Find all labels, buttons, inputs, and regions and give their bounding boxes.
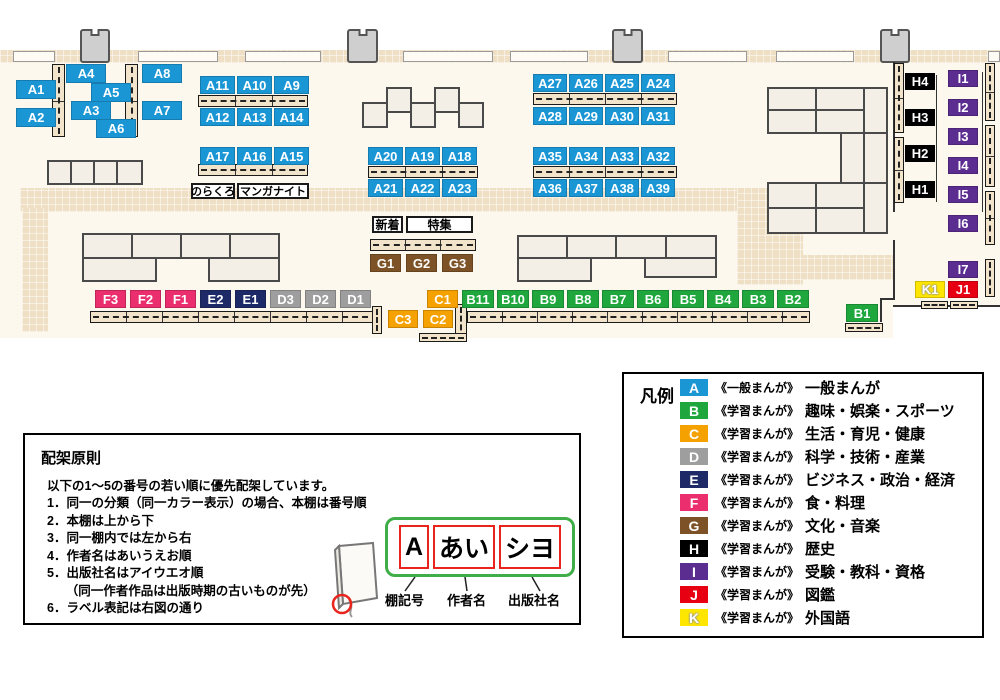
legend-row: H 《学習まんが》 歴史 [680, 540, 955, 557]
window [13, 51, 55, 62]
principles-rule: 2．本棚は上から下 [47, 513, 366, 531]
table-block [815, 207, 865, 234]
table-block [863, 87, 888, 134]
shelf-tag: A28 [533, 107, 567, 125]
category-label: 科学・技術・産業 [805, 446, 925, 467]
table-block [767, 182, 817, 209]
spine-label-diagram: Aあいシヨ [385, 517, 575, 577]
shelf-tag-row-a12-a14: A12A13A14 [200, 108, 309, 126]
legend-row: E 《学習まんが》 ビジネス・政治・経済 [680, 471, 955, 488]
legend-row: D 《学習まんが》 科学・技術・産業 [680, 448, 955, 465]
shelf-tag: B3 [742, 290, 774, 308]
shelf-tag-i7: I7 [948, 261, 978, 278]
shelf-tag: C2 [423, 310, 453, 328]
shelf-tag: A26 [569, 74, 603, 92]
wall-step [880, 298, 895, 300]
table-block [93, 160, 118, 185]
legend-row: K 《学習まんが》 外国語 [680, 609, 955, 626]
shelf-tag: A23 [442, 179, 477, 197]
shelf-tag: B10 [497, 290, 529, 308]
table-block [82, 257, 157, 282]
window [668, 51, 747, 62]
shelf-tag: F1 [165, 290, 196, 308]
table-block [517, 235, 568, 259]
bookshelf-b1 [845, 323, 883, 332]
window [138, 51, 218, 62]
shelf-tag-row-a20-a18: A20A19A18 [368, 147, 477, 165]
series-label: 《学習まんが》 [715, 402, 799, 419]
shelf-tag: A36 [533, 179, 567, 197]
shelf-tag-row-a35-a32: A35A34A33A32 [533, 147, 675, 165]
shelf-tag-row-fed: F3F2F1E2E1D3D2D1 [95, 290, 371, 308]
category-color-chip: C [680, 425, 708, 442]
table-block [767, 109, 817, 134]
series-label: 《学習まんが》 [715, 448, 799, 465]
shelf-tag: A13 [237, 108, 272, 126]
principles-rule: 1．同一の分類（同一カラー表示）の場合、本棚は番号順 [47, 495, 366, 513]
table-block [644, 257, 717, 278]
bookshelf [533, 166, 677, 178]
shelf-tag: A20 [368, 147, 403, 165]
table-block [863, 182, 888, 234]
shelf-tag: D3 [270, 290, 301, 308]
category-label: 受験・教科・資格 [805, 561, 925, 582]
wall-shelf [894, 63, 904, 133]
shelf-tag-j1: J1 [948, 281, 978, 298]
shelf-tag-a3: A3 [71, 101, 111, 120]
shelf-tag: B5 [672, 290, 704, 308]
shelf-tag: E2 [200, 290, 231, 308]
shelf-tag: H2 [905, 145, 935, 162]
shelf-unit-line-h [936, 75, 937, 202]
shelf-tag-row-g: G1G2G3 [370, 254, 473, 272]
caption-author-name: 作者名 [447, 590, 486, 609]
table-block [566, 235, 617, 259]
shelf-unit-line-i [982, 72, 983, 212]
shelf-tag: A10 [237, 76, 272, 94]
category-color-chip: J [680, 586, 708, 603]
shelf-tag: B4 [707, 290, 739, 308]
shelf-tag: A14 [274, 108, 309, 126]
shelf-tag-c1: C1 [427, 290, 458, 308]
shelf-tag: I2 [948, 99, 978, 116]
table-block [362, 102, 388, 128]
wall-shelf [985, 191, 995, 245]
series-label: 《学習まんが》 [715, 425, 799, 442]
bookshelf [372, 306, 382, 334]
table-block [615, 235, 667, 259]
shelf-tag: B2 [777, 290, 809, 308]
shelf-tag-a5: A5 [91, 83, 131, 102]
principles-rule: 4．作者名はあいうえお順 [47, 548, 366, 566]
shelf-tag: I4 [948, 157, 978, 174]
library-floor-map: { "colors": { "a_blue": "#1b96d5", "b_gr… [0, 0, 1000, 700]
shelf-tag-row-b: B11B10B9B8B7B6B5B4B3B2 [462, 290, 809, 308]
window [988, 51, 1000, 62]
shelf-tag: H1 [905, 181, 935, 198]
category-color-chip: A [680, 379, 708, 396]
table-block [815, 87, 865, 111]
window [776, 51, 854, 62]
shelf-tag: F2 [130, 290, 161, 308]
legend-row: A 《一般まんが》 一般まんが [680, 379, 955, 396]
bookshelf-long-left [90, 311, 381, 323]
principles-rule: 3．同一棚内では左から右 [47, 530, 366, 548]
shelf-tag: A17 [200, 147, 235, 165]
category-color-chip: I [680, 563, 708, 580]
shelf-tag-row-a36-a39: A36A37A38A39 [533, 179, 675, 197]
caption-publisher-name: 出版社名 [508, 590, 560, 609]
category-label: 歴史 [805, 538, 835, 559]
category-color-chip: K [680, 609, 708, 626]
wall-shelf [985, 125, 995, 187]
wall-shelf [985, 63, 995, 121]
legend-items: A 《一般まんが》 一般まんが B 《学習まんが》 趣味・娯楽・スポーツ C 《… [680, 379, 955, 626]
shelf-tag: A22 [405, 179, 440, 197]
shelf-tag: A39 [641, 179, 675, 197]
series-label: 《学習まんが》 [715, 517, 799, 534]
shelf-tag: G3 [442, 254, 473, 272]
pillar [347, 29, 378, 63]
category-color-chip: G [680, 517, 708, 534]
shelf-tag-k1: K1 [915, 281, 945, 298]
shelf-tag: A9 [274, 76, 309, 94]
principles-rules: 1．同一の分類（同一カラー表示）の場合、本棚は番号順2．本棚は上から下3．同一棚… [47, 495, 366, 618]
shelf-tag: A19 [405, 147, 440, 165]
table-block [815, 109, 865, 134]
caption-shelf-code: 棚記号 [385, 590, 424, 609]
category-label: 食・料理 [805, 492, 865, 513]
shelf-tag: B8 [567, 290, 599, 308]
new-and-feature-shelf [370, 239, 476, 251]
principles-rule: （同一作者作品は出版時期の古いものが先） [47, 583, 366, 601]
walkway-left [22, 208, 48, 332]
shelf-tag: E1 [235, 290, 266, 308]
table-block [208, 257, 280, 282]
window [245, 51, 321, 62]
shelf-tag: G1 [370, 254, 401, 272]
shelf-tag-row-a11-a9: A11A10A9 [200, 76, 309, 94]
wall-step [880, 298, 882, 322]
shelf-tag: A37 [569, 179, 603, 197]
pillar [880, 29, 910, 63]
shelf-tag: A34 [569, 147, 603, 165]
category-label: 趣味・娯楽・スポーツ [805, 400, 955, 421]
legend-row: F 《学習まんが》 食・料理 [680, 494, 955, 511]
bookshelf [198, 95, 308, 107]
legend-row: I 《学習まんが》 受験・教科・資格 [680, 563, 955, 580]
note-special-feature: 特集 [406, 216, 473, 233]
shelf-tag-a7: A7 [142, 101, 182, 120]
table-block [82, 233, 133, 259]
shelf-tag: I5 [948, 186, 978, 203]
shelf-tag: D1 [340, 290, 371, 308]
shelf-tag-row-a27-a24: A27A26A25A24 [533, 74, 675, 92]
wall-shelf [985, 259, 995, 297]
shelf-tag: I1 [948, 70, 978, 87]
shelf-tag: A33 [605, 147, 639, 165]
shelf-tag-row-a17-a15: A17A16A15 [200, 147, 309, 165]
legend-box: 凡例 A 《一般まんが》 一般まんが B 《学習まんが》 趣味・娯楽・スポーツ … [622, 372, 984, 638]
bookshelf [419, 333, 467, 342]
shelf-tag: A35 [533, 147, 567, 165]
shelf-tag-a8: A8 [142, 64, 182, 83]
shelf-tag-row-a21-a23: A21A22A23 [368, 179, 477, 197]
category-label: 外国語 [805, 607, 850, 628]
shelf-tag-row-c3-c2: C3C2 [388, 310, 453, 328]
shelf-tag: G2 [406, 254, 437, 272]
category-color-chip: F [680, 494, 708, 511]
shelf-tag: H4 [905, 73, 935, 90]
table-block [815, 182, 865, 209]
shelf-tag: A38 [605, 179, 639, 197]
shelf-tag: A15 [274, 147, 309, 165]
legend-row: J 《学習まんが》 図鑑 [680, 586, 955, 603]
shelf-tag: A16 [237, 147, 272, 165]
book-illustration [325, 538, 387, 618]
table-block [70, 160, 95, 185]
legend-title: 凡例 [640, 382, 674, 407]
series-label: 《学習まんが》 [715, 563, 799, 580]
shelf-tag: A31 [641, 107, 675, 125]
legend-row: G 《学習まんが》 文化・音楽 [680, 517, 955, 534]
series-label: 《学習まんが》 [715, 540, 799, 557]
shelf-tag-col-h: H4H3H2H1 [905, 73, 935, 198]
category-color-chip: B [680, 402, 708, 419]
spine-label-segment: シヨ [499, 525, 561, 569]
bookshelf-j1 [950, 301, 978, 309]
shelf-tag: B7 [602, 290, 634, 308]
shelf-tag-b1: B1 [846, 304, 878, 322]
shelf-tag: A12 [200, 108, 235, 126]
bookshelf [533, 93, 677, 105]
table-block [116, 160, 143, 185]
pillar [80, 29, 110, 63]
table-block [47, 160, 72, 185]
table-block [767, 207, 817, 234]
table-block [229, 233, 280, 259]
bookshelf [198, 164, 308, 176]
shelf-tag: A29 [569, 107, 603, 125]
shelf-tag: A30 [605, 107, 639, 125]
shelf-tag: B9 [532, 290, 564, 308]
table-block [665, 235, 717, 259]
shelf-tag: A18 [442, 147, 477, 165]
wall-shelf [894, 137, 904, 203]
shelf-tag: A21 [368, 179, 403, 197]
bookshelf-long-right [467, 311, 810, 323]
shelf-tag: F3 [95, 290, 126, 308]
series-label: 《学習まんが》 [715, 471, 799, 488]
shelf-tag-a4: A4 [66, 64, 106, 83]
category-label: 一般まんが [805, 377, 880, 398]
category-label: 文化・音楽 [805, 515, 880, 536]
shelf-tag-a6: A6 [96, 119, 136, 138]
shelf-tag: D2 [305, 290, 336, 308]
legend-row: B 《学習まんが》 趣味・娯楽・スポーツ [680, 402, 955, 419]
bookshelf-k1 [921, 301, 948, 309]
table-block [386, 87, 412, 113]
principles-rule: 6．ラベル表記は右図の通り [47, 600, 366, 618]
wall-right-lower [893, 240, 895, 300]
shelf-tag: A25 [605, 74, 639, 92]
shelf-tag: A32 [641, 147, 675, 165]
spine-label-segment: A [399, 525, 429, 569]
note-manga-night: マンガナイト [237, 183, 309, 199]
table-block [410, 102, 436, 128]
shelf-tag: I6 [948, 215, 978, 232]
series-label: 《一般まんが》 [715, 379, 799, 396]
legend-row: C 《学習まんが》 生活・育児・健康 [680, 425, 955, 442]
principles-intro: 以下の1～5の番号の若い順に優先配架しています。 [47, 475, 334, 494]
series-label: 《学習まんが》 [715, 609, 799, 626]
category-color-chip: H [680, 540, 708, 557]
bookshelf [368, 166, 478, 178]
shelf-tag: I3 [948, 128, 978, 145]
shelf-tag: C3 [388, 310, 418, 328]
pillar [612, 29, 643, 63]
table-block [434, 87, 460, 113]
shelf-tag: H3 [905, 109, 935, 126]
shelf-tag-row-a28-a31: A28A29A30A31 [533, 107, 675, 125]
shelf-tag: A11 [200, 76, 235, 94]
walkway-bottom [737, 255, 893, 280]
series-label: 《学習まんが》 [715, 586, 799, 603]
shelf-tag: A27 [533, 74, 567, 92]
shelf-tag: B11 [462, 290, 494, 308]
table-block [180, 233, 231, 259]
table-block [767, 87, 817, 111]
series-label: 《学習まんが》 [715, 494, 799, 511]
category-label: 図鑑 [805, 584, 835, 605]
principles-title: 配架原則 [41, 447, 101, 468]
principles-rule: 5．出版社名はアイウエオ順 [47, 565, 366, 583]
table-block [517, 257, 592, 282]
shelf-tag: A24 [641, 74, 675, 92]
table-block [863, 132, 888, 184]
note-new-arrivals: 新着 [372, 216, 403, 233]
window [403, 51, 493, 62]
note-norakuro: のらくろ [191, 183, 235, 199]
table-block [458, 102, 484, 128]
category-color-chip: E [680, 471, 708, 488]
table-block [131, 233, 182, 259]
category-color-chip: D [680, 448, 708, 465]
table-block [840, 132, 865, 184]
shelf-tag: B6 [637, 290, 669, 308]
shelf-tag-col-i: I1I2I3I4I5I6 [948, 70, 978, 232]
category-label: 生活・育児・健康 [805, 423, 925, 444]
spine-label-segment: あい [433, 525, 495, 569]
shelf-tag-a2: A2 [16, 108, 56, 127]
shelf-tag-a1: A1 [16, 80, 56, 99]
category-label: ビジネス・政治・経済 [805, 469, 955, 490]
window [510, 51, 588, 62]
